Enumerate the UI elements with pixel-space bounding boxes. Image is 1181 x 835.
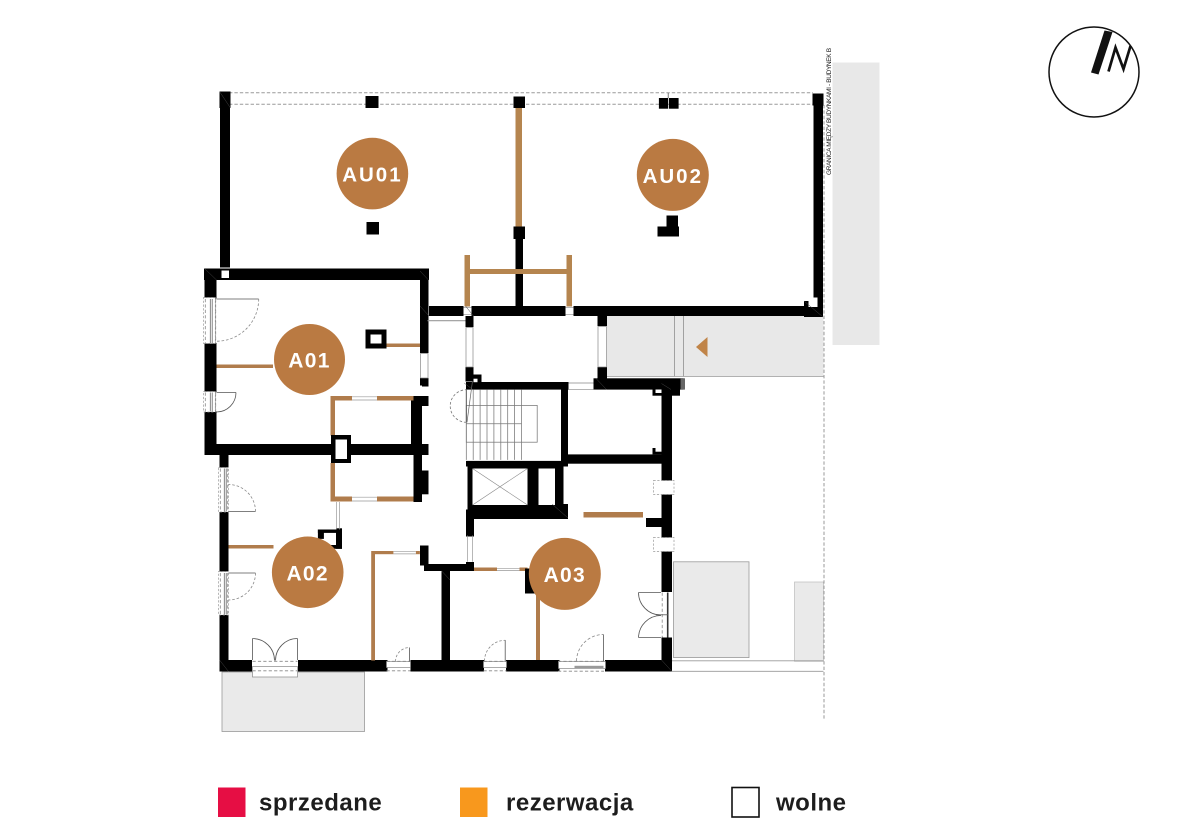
svg-text:wolne: wolne bbox=[775, 790, 847, 817]
svg-text:rezerwacja: rezerwacja bbox=[506, 790, 634, 817]
svg-text:sprzedane: sprzedane bbox=[259, 790, 382, 817]
svg-text:A03: A03 bbox=[544, 564, 586, 587]
svg-text:GRANICA MIĘDZY BUDYNKAMI - BUD: GRANICA MIĘDZY BUDYNKAMI - BUDYNEK B bbox=[826, 48, 833, 175]
svg-text:A02: A02 bbox=[286, 562, 328, 585]
svg-text:AU01: AU01 bbox=[342, 164, 402, 187]
svg-text:A01: A01 bbox=[288, 350, 330, 373]
svg-text:AU02: AU02 bbox=[643, 165, 703, 188]
